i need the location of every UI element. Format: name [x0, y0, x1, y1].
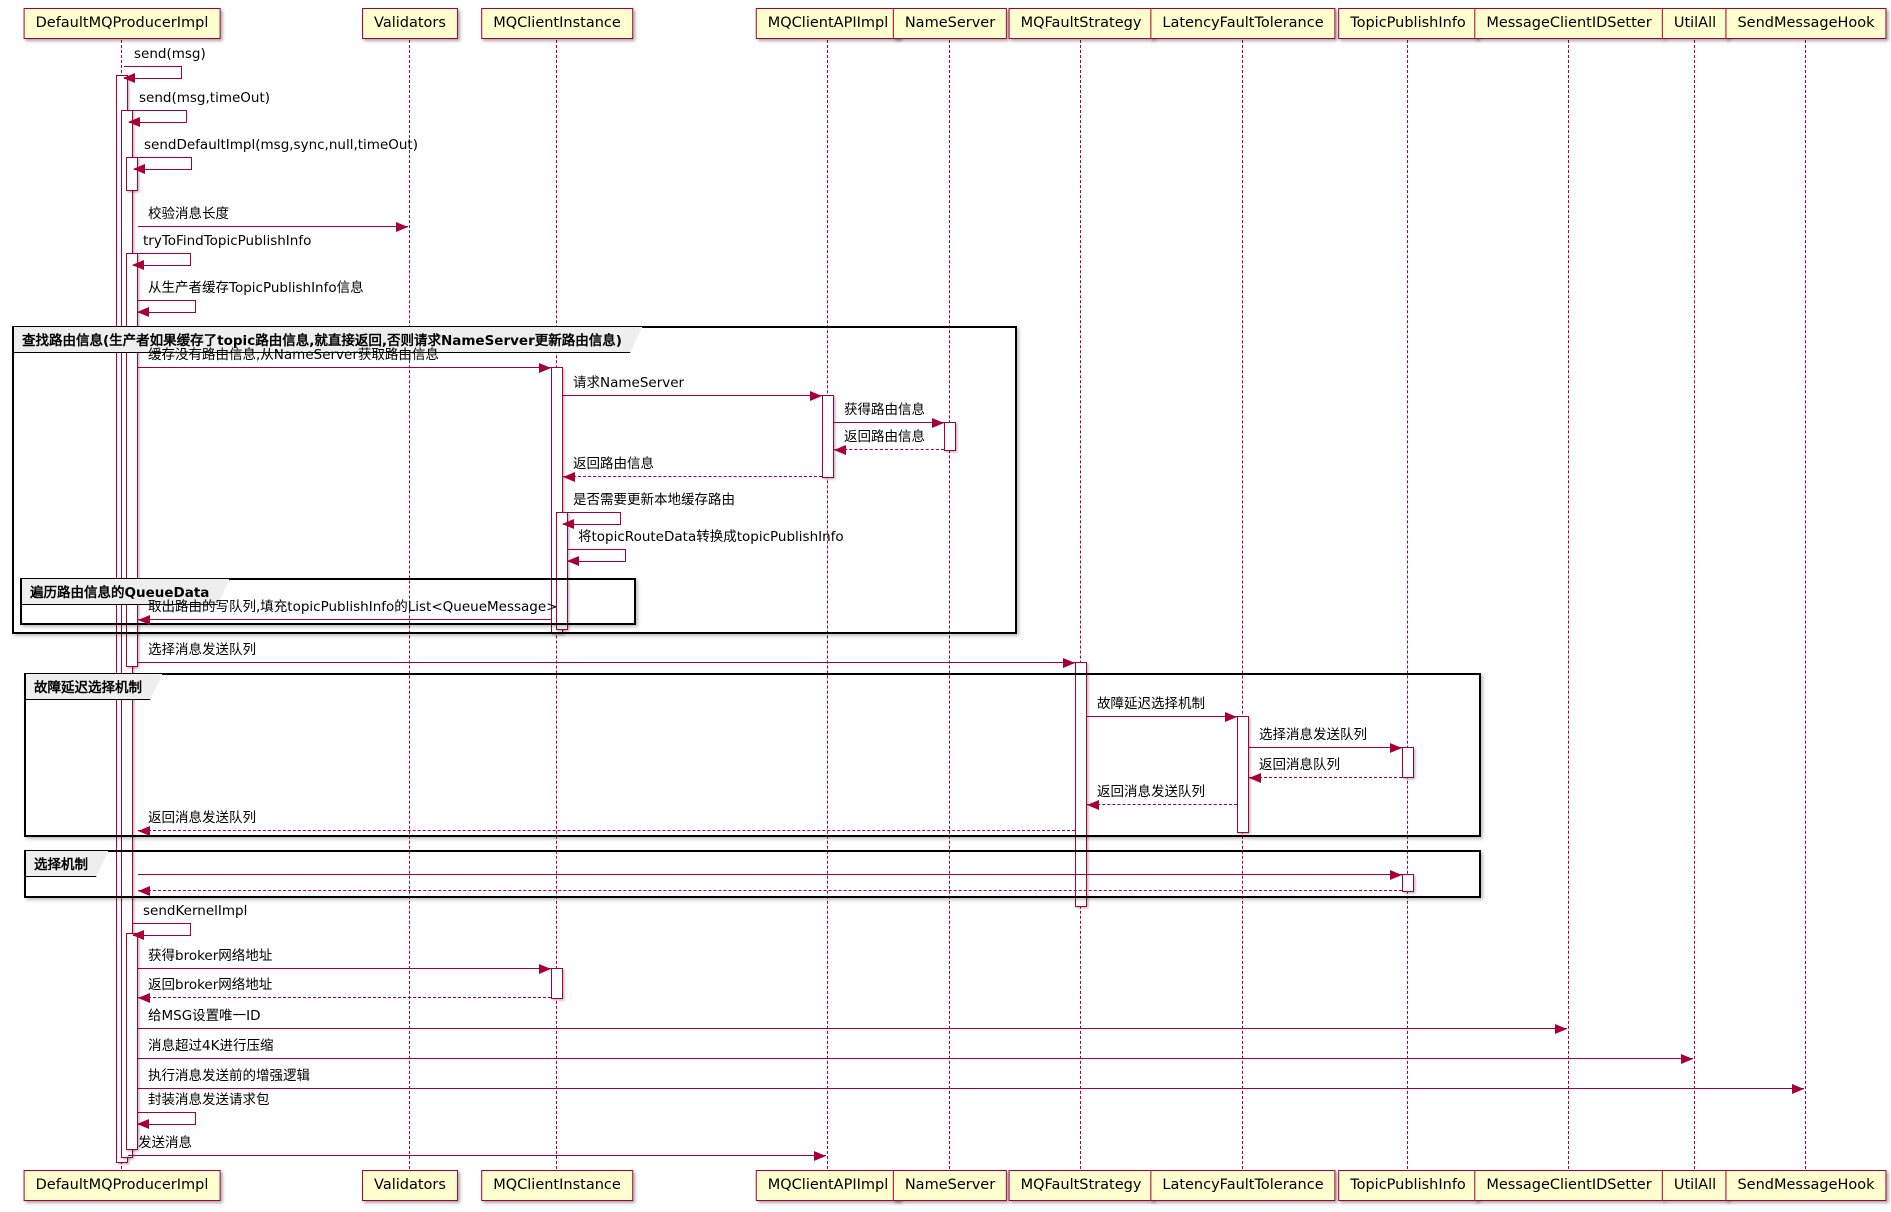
arrowhead: [567, 556, 579, 566]
activation-bar: [1402, 747, 1414, 778]
message-line: [563, 395, 822, 396]
arrowhead: [138, 886, 150, 896]
arrowhead: [138, 993, 150, 1003]
participant-box-top: Validators: [362, 8, 458, 39]
participant-box-top: TopicPublishInfo: [1338, 8, 1478, 39]
message-label: 从生产者缓存TopicPublishInfo信息: [148, 281, 364, 296]
message-label: send(msg): [134, 47, 206, 62]
arrowhead: [1225, 712, 1237, 722]
participant-box-bottom: Validators: [362, 1170, 458, 1201]
message-line: [563, 476, 822, 477]
arrowhead: [814, 1151, 826, 1161]
lifeline: [827, 40, 828, 1174]
arrowhead: [128, 117, 140, 127]
arrowhead: [810, 391, 822, 401]
message-label: sendDefaultImpl(msg,sync,null,timeOut): [144, 138, 418, 153]
message-label: 执行消息发送前的增强逻辑: [148, 1069, 310, 1084]
lifeline: [949, 40, 950, 1174]
lifeline: [1568, 40, 1569, 1174]
message-line: [128, 1155, 826, 1156]
arrowhead: [1063, 658, 1075, 668]
message-label: 消息超过4K进行压缩: [148, 1039, 273, 1054]
lifeline: [1805, 40, 1806, 1174]
message-line: [1087, 804, 1237, 805]
arrowhead: [396, 222, 408, 232]
message-label: 返回路由信息: [844, 430, 925, 445]
message-label: 获得broker网络地址: [148, 949, 272, 964]
message-label: 请求NameServer: [573, 376, 684, 391]
message-label: 缓存没有路由信息,从NameServer获取路由信息: [148, 348, 439, 363]
lifeline: [1407, 40, 1408, 1174]
message-label: 将topicRouteData转换成topicPublishInfo: [578, 530, 844, 545]
message-label: send(msg,timeOut): [139, 91, 270, 106]
arrowhead: [133, 164, 145, 174]
arrowhead: [1390, 870, 1402, 880]
arrowhead: [137, 307, 149, 317]
message-label: 返回消息队列: [1259, 758, 1340, 773]
arrowhead: [834, 445, 846, 455]
message-label: 发送消息: [138, 1136, 192, 1151]
activation-bar: [126, 933, 138, 1150]
message-line: [1249, 777, 1402, 778]
message-label: 返回消息发送队列: [148, 811, 256, 826]
participant-box-bottom: UtilAll: [1662, 1170, 1728, 1201]
activation-bar: [944, 422, 956, 451]
message-line: [1087, 716, 1237, 717]
participant-box-top: LatencyFaultTolerance: [1150, 8, 1335, 39]
participant-box-bottom: NameServer: [893, 1170, 1007, 1201]
message-label: 是否需要更新本地缓存路由: [573, 493, 735, 508]
message-line: [138, 1088, 1804, 1089]
message-label: sendKernelImpl: [143, 904, 247, 919]
message-line: [138, 662, 1075, 663]
message-label: 选择消息发送队列: [1259, 728, 1367, 743]
participant-box-top: SendMessageHook: [1725, 8, 1886, 39]
participant-box-top: MessageClientIDSetter: [1474, 8, 1663, 39]
participant-box-top: DefaultMQProducerImpl: [24, 8, 221, 39]
activation-bar: [1402, 874, 1414, 892]
arrowhead: [137, 1119, 149, 1129]
participant-box-bottom: MQClientAPIImpl: [756, 1170, 900, 1201]
participant-box-top: UtilAll: [1662, 8, 1728, 39]
message-line: [138, 1028, 1567, 1029]
message-line: [138, 997, 551, 998]
activation-bar: [822, 395, 834, 478]
message-line: [138, 226, 408, 227]
arrowhead: [563, 472, 575, 482]
arrowhead: [1087, 800, 1099, 810]
activation-bar: [556, 512, 568, 630]
participant-box-bottom: MessageClientIDSetter: [1474, 1170, 1663, 1201]
message-line: [138, 890, 1402, 891]
arrowhead: [562, 519, 574, 529]
message-label: 给MSG设置唯一ID: [148, 1009, 261, 1024]
message-line: [138, 619, 551, 620]
message-line: [834, 449, 944, 450]
arrowhead: [132, 930, 144, 940]
message-label: 选择消息发送队列: [148, 643, 256, 658]
arrowhead: [932, 418, 944, 428]
participant-box-top: MQClientAPIImpl: [756, 8, 900, 39]
message-label: tryToFindTopicPublishInfo: [143, 234, 311, 249]
participant-box-top: MQFaultStrategy: [1009, 8, 1154, 39]
message-line: [1249, 747, 1402, 748]
arrowhead: [123, 73, 135, 83]
message-line: [834, 422, 944, 423]
message-line: [138, 968, 551, 969]
lifeline: [1242, 40, 1243, 1174]
arrowhead: [1792, 1084, 1804, 1094]
group-title-tab: 选择机制: [24, 850, 109, 877]
arrowhead: [1555, 1024, 1567, 1034]
participant-box-top: MQClientInstance: [481, 8, 633, 39]
message-label: 取出路由的写队列,填充topicPublishInfo的List<QueueMe…: [148, 600, 558, 615]
participant-box-bottom: MQClientInstance: [481, 1170, 633, 1201]
activation-bar: [1237, 716, 1249, 833]
activation-bar: [551, 968, 563, 999]
message-label: 封装消息发送请求包: [148, 1093, 270, 1108]
message-line: [138, 830, 1075, 831]
arrowhead: [138, 826, 150, 836]
arrowhead: [539, 964, 551, 974]
lifeline: [1080, 40, 1081, 1174]
activation-bar: [1075, 662, 1087, 907]
group-title: 选择机制: [34, 857, 88, 873]
participant-box-bottom: DefaultMQProducerImpl: [24, 1170, 221, 1201]
participant-box-top: NameServer: [893, 8, 1007, 39]
message-line: [138, 1058, 1693, 1059]
arrowhead: [138, 615, 150, 625]
sequence-diagram: DefaultMQProducerImplDefaultMQProducerIm…: [0, 0, 1891, 1212]
message-label: 返回broker网络地址: [148, 978, 272, 993]
arrowhead: [1249, 773, 1261, 783]
group-frame: 查找路由信息(生产者如果缓存了topic路由信息,就直接返回,否则请求NameS…: [12, 326, 1017, 634]
message-line: [138, 874, 1402, 875]
message-line: [138, 367, 551, 368]
arrowhead: [539, 363, 551, 373]
arrowhead: [1681, 1054, 1693, 1064]
lifeline: [1694, 40, 1695, 1174]
message-label: 校验消息长度: [148, 207, 229, 222]
message-label: 返回消息发送队列: [1097, 785, 1205, 800]
message-label: 返回路由信息: [573, 457, 654, 472]
arrowhead: [1390, 743, 1402, 753]
participant-box-bottom: MQFaultStrategy: [1009, 1170, 1154, 1201]
group-title-tab: 故障延迟选择机制: [24, 673, 163, 700]
message-label: 获得路由信息: [844, 403, 925, 418]
participant-box-bottom: TopicPublishInfo: [1338, 1170, 1478, 1201]
arrowhead: [132, 260, 144, 270]
message-label: 故障延迟选择机制: [1097, 697, 1205, 712]
participant-box-bottom: LatencyFaultTolerance: [1150, 1170, 1335, 1201]
participant-box-bottom: SendMessageHook: [1725, 1170, 1886, 1201]
